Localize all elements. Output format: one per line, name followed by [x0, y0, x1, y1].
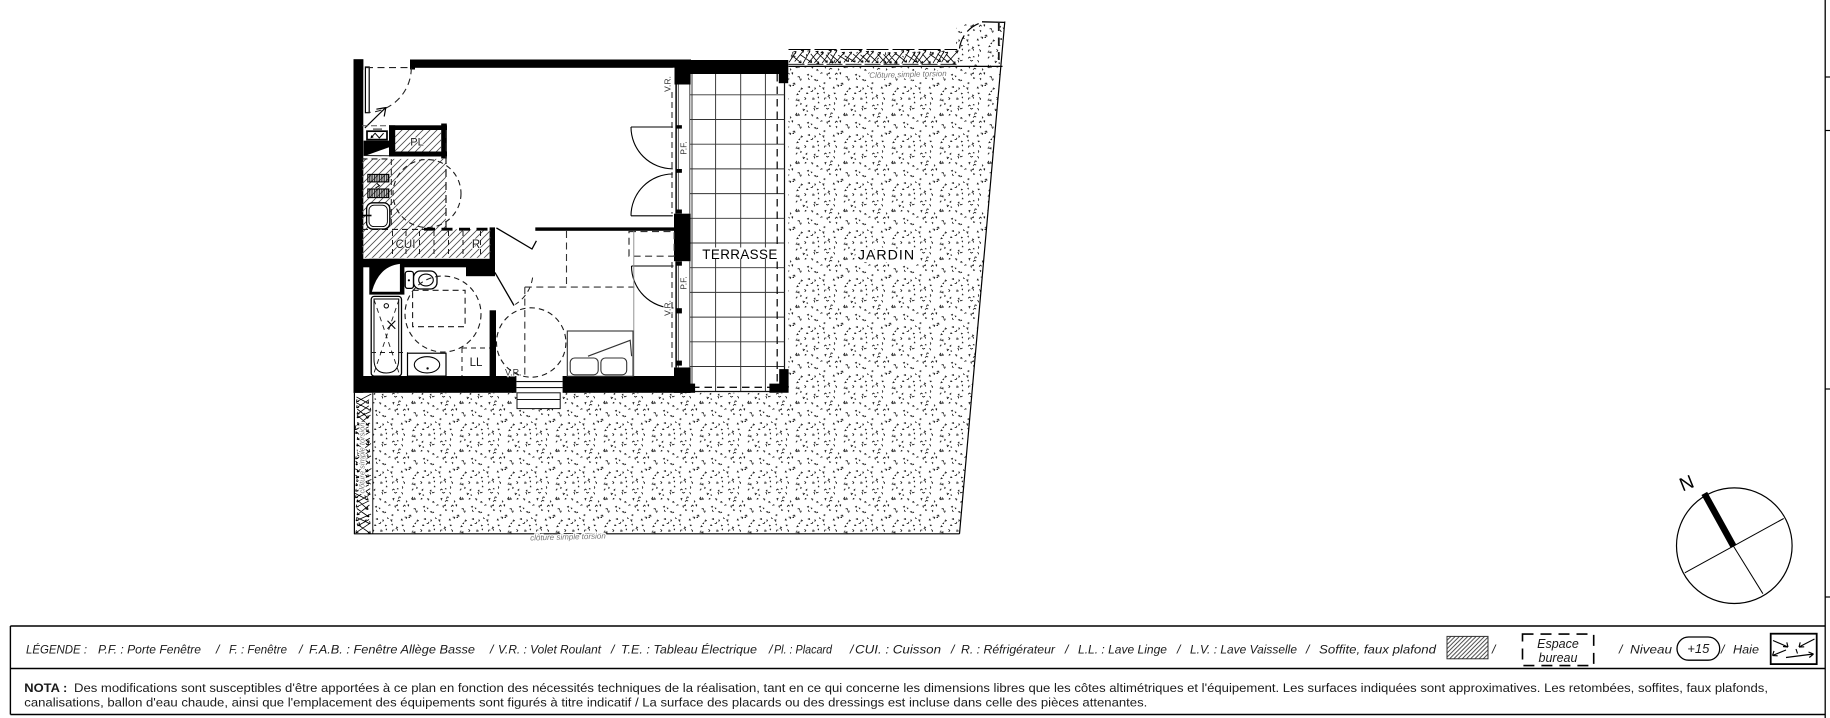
svg-text:LÉGENDE :: LÉGENDE :: [26, 642, 87, 657]
svg-text:V.R.: V.R.: [663, 76, 673, 92]
svg-text:T.E. : Tableau Électrique: T.E. : Tableau Électrique: [621, 642, 757, 657]
svg-text:P.F.: P.F.: [679, 141, 689, 155]
svg-text:Niveau: Niveau: [1630, 643, 1672, 657]
svg-text:P.F. : Porte Fenêtre: P.F. : Porte Fenêtre: [98, 643, 201, 657]
svg-text:R. : Réfrigérateur: R. : Réfrigérateur: [961, 643, 1056, 657]
svg-text:canalisations, ballon d'eau ch: canalisations, ballon d'eau chaude, ains…: [24, 696, 1147, 710]
svg-text:P.F.: P.F.: [679, 276, 689, 290]
svg-text:F.A.B. : Fenêtre Allège Basse: F.A.B. : Fenêtre Allège Basse: [309, 643, 475, 657]
svg-text:L.V. : Lave Vaisselle: L.V. : Lave Vaisselle: [1190, 643, 1297, 657]
svg-text:V.R.: V.R.: [505, 368, 522, 378]
svg-text:JARDIN: JARDIN: [858, 248, 915, 264]
svg-text:F. : Fenêtre: F. : Fenêtre: [229, 643, 287, 657]
svg-text:clôture simple torsion: clôture simple torsion: [358, 423, 367, 494]
svg-text:PL: PL: [410, 137, 423, 149]
svg-text:Espace: Espace: [1537, 637, 1579, 651]
svg-text:Des modifications sont suscept: Des modifications sont susceptibles d'êt…: [74, 681, 1768, 695]
svg-text:V.R.: V.R.: [663, 300, 673, 316]
svg-text:LL: LL: [470, 357, 483, 369]
svg-text:Haie: Haie: [1733, 643, 1759, 657]
svg-text:Pl. : Placard: Pl. : Placard: [774, 643, 833, 657]
svg-text:L.L. : Lave Linge: L.L. : Lave Linge: [1078, 643, 1167, 657]
svg-text:TERRASSE: TERRASSE: [702, 247, 777, 262]
svg-text:bureau: bureau: [1539, 651, 1578, 665]
svg-text:CUI. : Cuisson: CUI. : Cuisson: [855, 643, 941, 657]
svg-text:NOTA :: NOTA :: [24, 681, 67, 695]
svg-text:V.R. : Volet Roulant: V.R. : Volet Roulant: [498, 643, 602, 657]
svg-text:+15: +15: [1687, 641, 1710, 656]
svg-text:Soffite, faux plafond: Soffite, faux plafond: [1319, 643, 1437, 657]
svg-text:R: R: [472, 239, 480, 251]
svg-text:CUI: CUI: [396, 239, 416, 251]
